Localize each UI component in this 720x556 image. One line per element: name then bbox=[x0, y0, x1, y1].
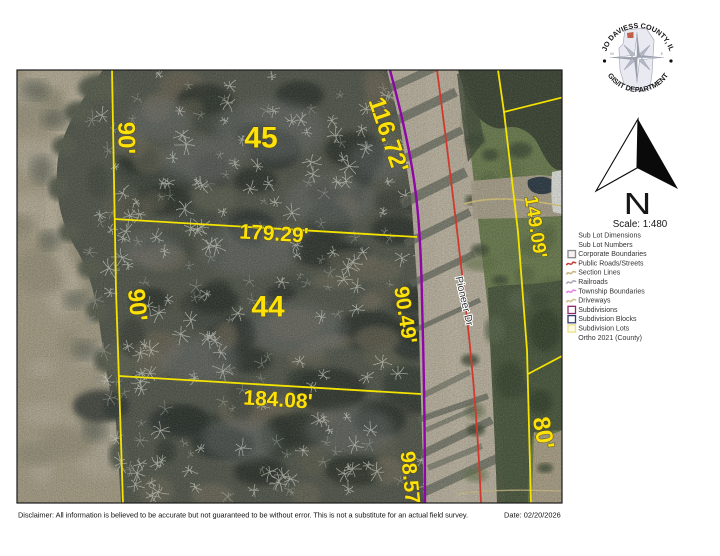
svg-text:Township Boundaries: Township Boundaries bbox=[578, 288, 645, 295]
svg-text:Corporate Boundaries: Corporate Boundaries bbox=[578, 251, 647, 258]
svg-text:90': 90' bbox=[112, 122, 140, 155]
svg-text:179.29': 179.29' bbox=[239, 220, 310, 247]
svg-text:W: W bbox=[610, 51, 614, 56]
svg-text:Public Roads/Streets: Public Roads/Streets bbox=[578, 260, 644, 267]
svg-text:184.08': 184.08' bbox=[243, 386, 314, 413]
svg-text:44: 44 bbox=[251, 291, 285, 324]
svg-text:Subdivisions: Subdivisions bbox=[578, 307, 618, 314]
svg-text:90': 90' bbox=[122, 287, 152, 322]
svg-text:Section Lines: Section Lines bbox=[578, 270, 621, 277]
svg-text:Ortho 2021 (County): Ortho 2021 (County) bbox=[578, 335, 642, 342]
svg-text:Driveways: Driveways bbox=[578, 298, 611, 305]
svg-text:Subdivision Blocks: Subdivision Blocks bbox=[578, 316, 637, 323]
svg-text:Date: 02/20/2026: Date: 02/20/2026 bbox=[504, 511, 561, 520]
svg-text:Disclaimer: All information is: Disclaimer: All information is believed … bbox=[18, 511, 468, 520]
svg-text:Railroads: Railroads bbox=[578, 279, 608, 286]
svg-text:Scale: 1:480: Scale: 1:480 bbox=[613, 219, 668, 230]
svg-text:Subdivision Lots: Subdivision Lots bbox=[578, 326, 629, 333]
svg-text:Sub Lot Dimensions: Sub Lot Dimensions bbox=[578, 233, 641, 240]
svg-text:N: N bbox=[624, 188, 652, 221]
svg-text:80': 80' bbox=[527, 415, 559, 452]
svg-text:Sub Lot Numbers: Sub Lot Numbers bbox=[578, 242, 633, 249]
svg-text:E: E bbox=[661, 51, 664, 56]
svg-text:45: 45 bbox=[244, 122, 277, 155]
